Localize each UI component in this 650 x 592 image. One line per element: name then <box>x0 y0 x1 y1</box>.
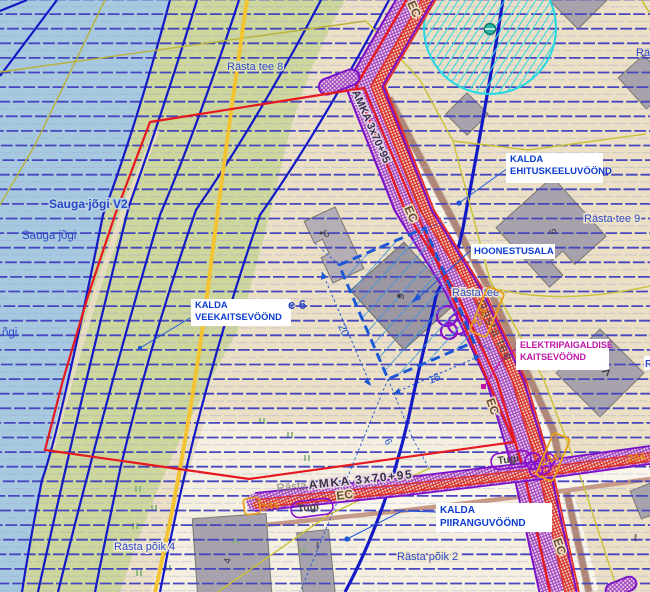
svg-text:EHITUSKEELUVÖÖND: EHITUSKEELUVÖÖND <box>510 166 612 177</box>
svg-text:Rästa põik 2: Rästa põik 2 <box>397 551 458 563</box>
svg-text:EC: EC <box>335 487 354 503</box>
svg-text:PIIRANGUVÖÖND: PIIRANGUVÖÖND <box>440 516 526 529</box>
svg-text:Rä: Rä <box>636 47 650 59</box>
svg-text:244: 244 <box>627 451 646 465</box>
svg-text:KALDA: KALDA <box>510 154 543 165</box>
svg-text:R: R <box>645 359 650 370</box>
svg-text:Sauga jõgi: Sauga jõgi <box>22 230 76 242</box>
svg-text:244: 244 <box>261 500 280 514</box>
svg-text:KALDA: KALDA <box>440 505 475 516</box>
svg-text:Sauga jõgi V2: Sauga jõgi V2 <box>49 197 128 211</box>
svg-text:e 6: e 6 <box>288 297 306 312</box>
svg-text:Rästa tee 8: Rästa tee 8 <box>227 61 283 73</box>
svg-text:Rästa tee 9: Rästa tee 9 <box>584 213 640 225</box>
svg-text:KAITSEVÖÖND: KAITSEVÖÖND <box>520 352 587 362</box>
svg-text:VEEKAITSEVÖÖND: VEEKAITSEVÖÖND <box>195 312 282 322</box>
svg-text:ELEKTRIPAIGALDISE: ELEKTRIPAIGALDISE <box>520 340 613 350</box>
svg-text:Rästa põik 4: Rästa põik 4 <box>114 541 175 553</box>
svg-text:HOONESTUSALA: HOONESTUSALA <box>474 246 554 257</box>
svg-text:õgi: õgi <box>2 327 17 339</box>
svg-text:KALDA: KALDA <box>195 300 228 310</box>
